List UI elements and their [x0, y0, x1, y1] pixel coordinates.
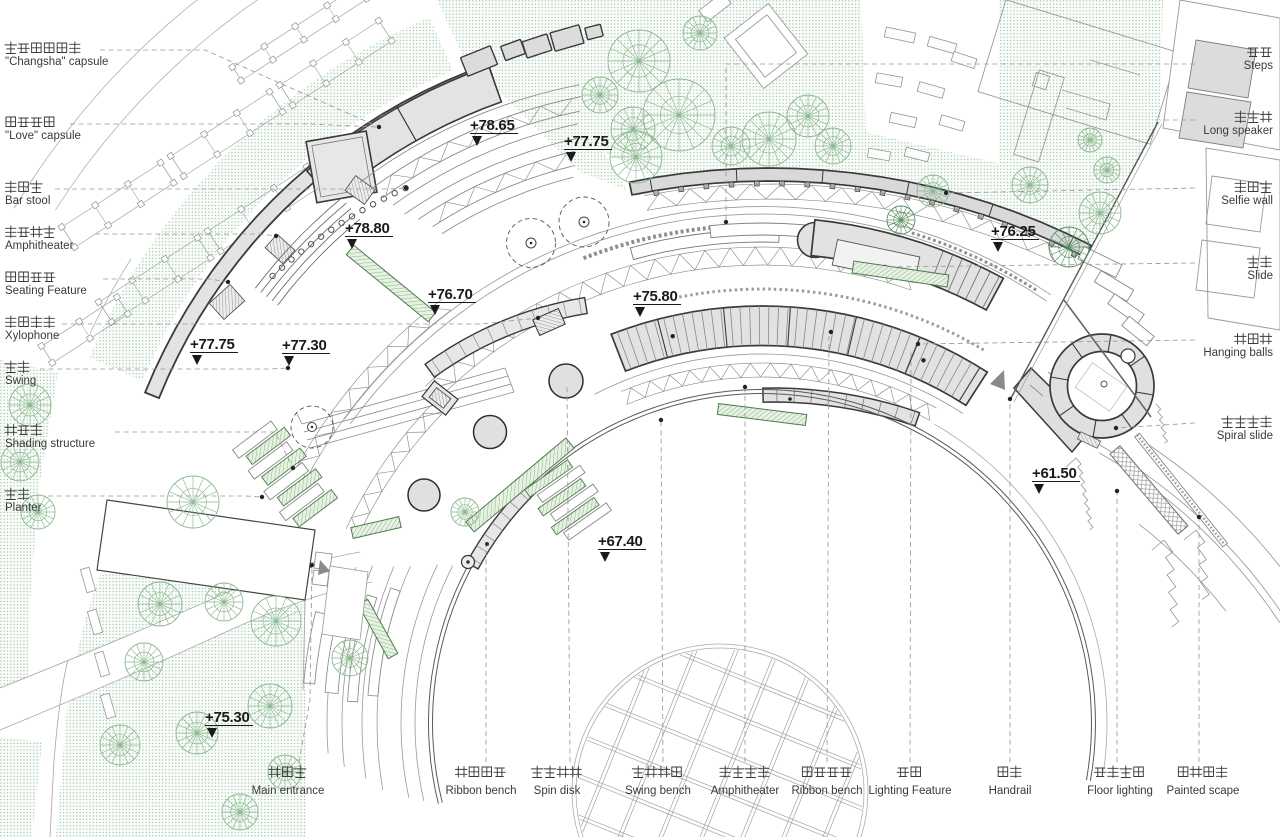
svg-text:+67.40: +67.40: [598, 533, 643, 550]
svg-text:+75.30: +75.30: [205, 709, 250, 726]
svg-text:+77.30: +77.30: [282, 337, 327, 354]
svg-text:+76.25: +76.25: [991, 223, 1036, 240]
svg-text:"Love" capsule: "Love" capsule: [5, 130, 81, 142]
svg-text:+75.80: +75.80: [633, 288, 678, 305]
svg-text:Amphitheater: Amphitheater: [711, 785, 780, 797]
svg-text:Shading structure: Shading structure: [5, 438, 95, 450]
svg-text:Steps: Steps: [1244, 60, 1274, 72]
svg-text:Amphitheater: Amphitheater: [5, 240, 74, 252]
svg-text:Painted scape: Painted scape: [1167, 785, 1240, 797]
svg-text:Hanging balls: Hanging balls: [1203, 347, 1273, 359]
svg-text:Slide: Slide: [1247, 270, 1273, 282]
svg-text:+76.70: +76.70: [428, 286, 473, 303]
svg-text:Swing: Swing: [5, 375, 36, 387]
svg-text:Selfie wall: Selfie wall: [1221, 195, 1273, 207]
svg-text:Bar stool: Bar stool: [5, 195, 50, 207]
svg-text:Main entrance: Main entrance: [252, 785, 325, 797]
svg-text:Lighting Feature: Lighting Feature: [868, 785, 951, 797]
svg-text:Spin disk: Spin disk: [534, 785, 581, 797]
svg-text:"Changsha" capsule: "Changsha" capsule: [5, 56, 108, 68]
svg-text:Long speaker: Long speaker: [1203, 125, 1273, 137]
svg-text:Spiral slide: Spiral slide: [1217, 430, 1273, 442]
svg-text:Ribbon bench: Ribbon bench: [792, 785, 863, 797]
svg-text:Ribbon bench: Ribbon bench: [446, 785, 517, 797]
svg-text:Handrail: Handrail: [989, 785, 1032, 797]
svg-text:+61.50: +61.50: [1032, 465, 1077, 482]
svg-text:Floor lighting: Floor lighting: [1087, 785, 1153, 797]
svg-text:+78.80: +78.80: [345, 220, 390, 237]
svg-text:+78.65: +78.65: [470, 117, 515, 134]
svg-text:+77.75: +77.75: [190, 336, 235, 353]
svg-text:Planter: Planter: [5, 502, 42, 514]
svg-text:Seating Feature: Seating Feature: [5, 285, 87, 297]
svg-text:+77.75: +77.75: [564, 133, 609, 150]
svg-text:Swing bench: Swing bench: [625, 785, 691, 797]
svg-text:Xylophone: Xylophone: [5, 330, 59, 342]
